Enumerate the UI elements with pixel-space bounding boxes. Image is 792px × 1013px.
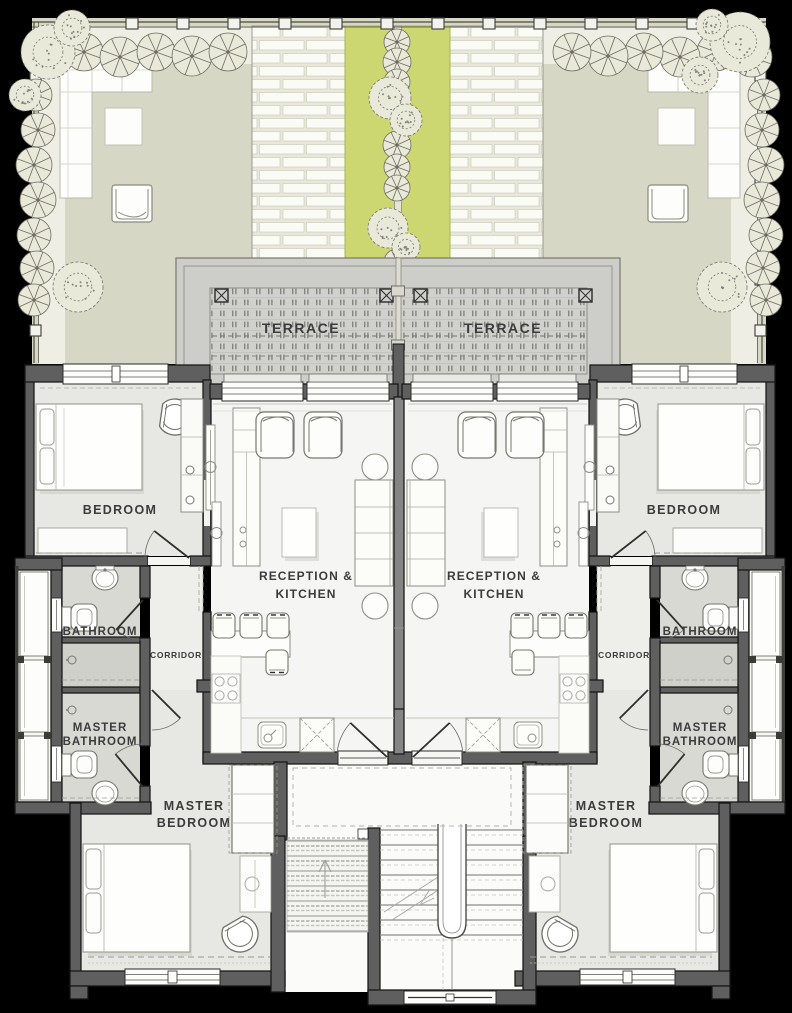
svg-text:MASTER: MASTER bbox=[673, 722, 728, 734]
svg-text:MASTER: MASTER bbox=[164, 799, 225, 813]
svg-text:BEDROOM: BEDROOM bbox=[647, 503, 721, 517]
svg-text:BEDROOM: BEDROOM bbox=[569, 816, 643, 830]
svg-text:CORRIDOR: CORRIDOR bbox=[150, 650, 202, 660]
svg-text:RECEPTION &: RECEPTION & bbox=[447, 569, 541, 583]
svg-text:RECEPTION &: RECEPTION & bbox=[259, 569, 353, 583]
svg-text:BEDROOM: BEDROOM bbox=[157, 816, 231, 830]
svg-text:BATHROOM: BATHROOM bbox=[663, 736, 738, 748]
svg-text:BEDROOM: BEDROOM bbox=[83, 503, 157, 517]
svg-text:BATHROOM: BATHROOM bbox=[663, 626, 738, 638]
svg-text:KITCHEN: KITCHEN bbox=[275, 587, 336, 601]
svg-text:MASTER: MASTER bbox=[73, 722, 128, 734]
svg-text:BATHROOM: BATHROOM bbox=[63, 736, 138, 748]
svg-text:BATHROOM: BATHROOM bbox=[63, 626, 138, 638]
svg-text:MASTER: MASTER bbox=[576, 799, 637, 813]
svg-text:CORRIDOR: CORRIDOR bbox=[598, 650, 650, 660]
svg-text:KITCHEN: KITCHEN bbox=[463, 587, 524, 601]
svg-text:TERRACE: TERRACE bbox=[262, 320, 340, 336]
svg-text:TERRACE: TERRACE bbox=[464, 320, 542, 336]
